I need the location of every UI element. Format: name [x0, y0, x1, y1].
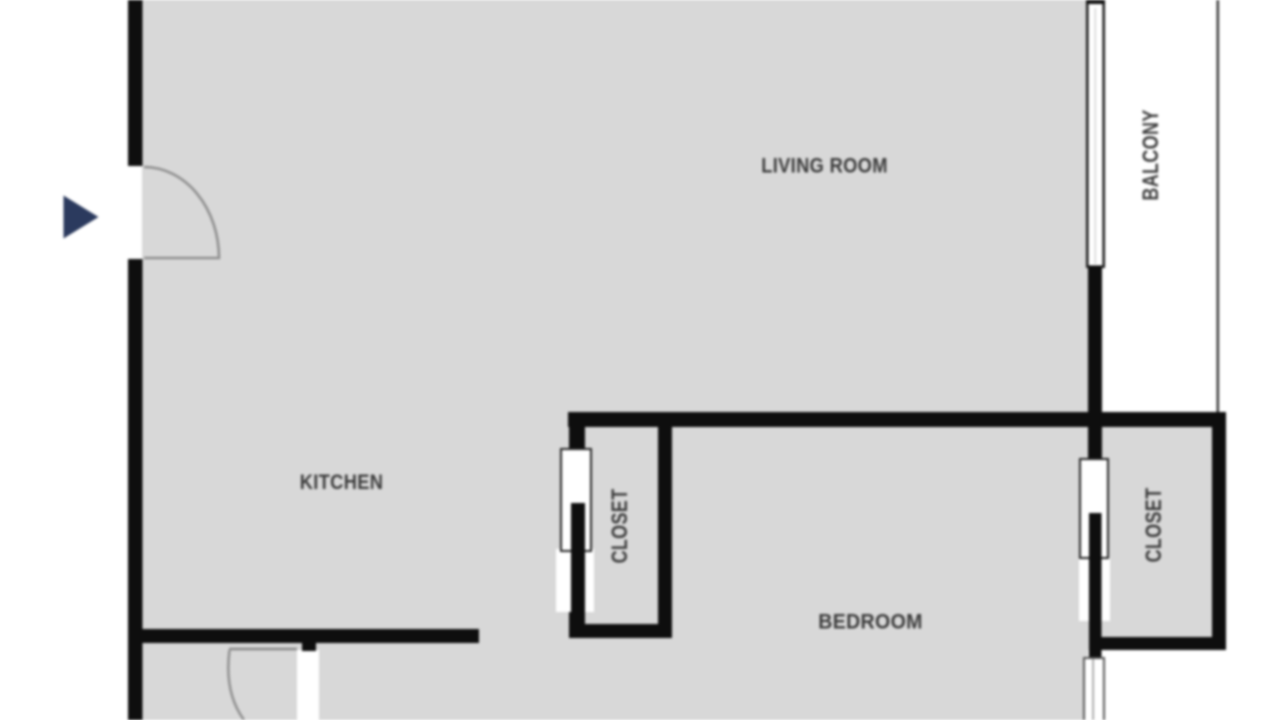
- svg-text:CLOSET: CLOSET: [1142, 487, 1166, 562]
- svg-text:BALCONY: BALCONY: [1139, 109, 1163, 200]
- svg-text:BEDROOM: BEDROOM: [818, 611, 923, 634]
- svg-text:KITCHEN: KITCHEN: [300, 471, 384, 494]
- svg-text:CLOSET: CLOSET: [608, 488, 632, 563]
- svg-text:LIVING ROOM: LIVING ROOM: [761, 154, 888, 177]
